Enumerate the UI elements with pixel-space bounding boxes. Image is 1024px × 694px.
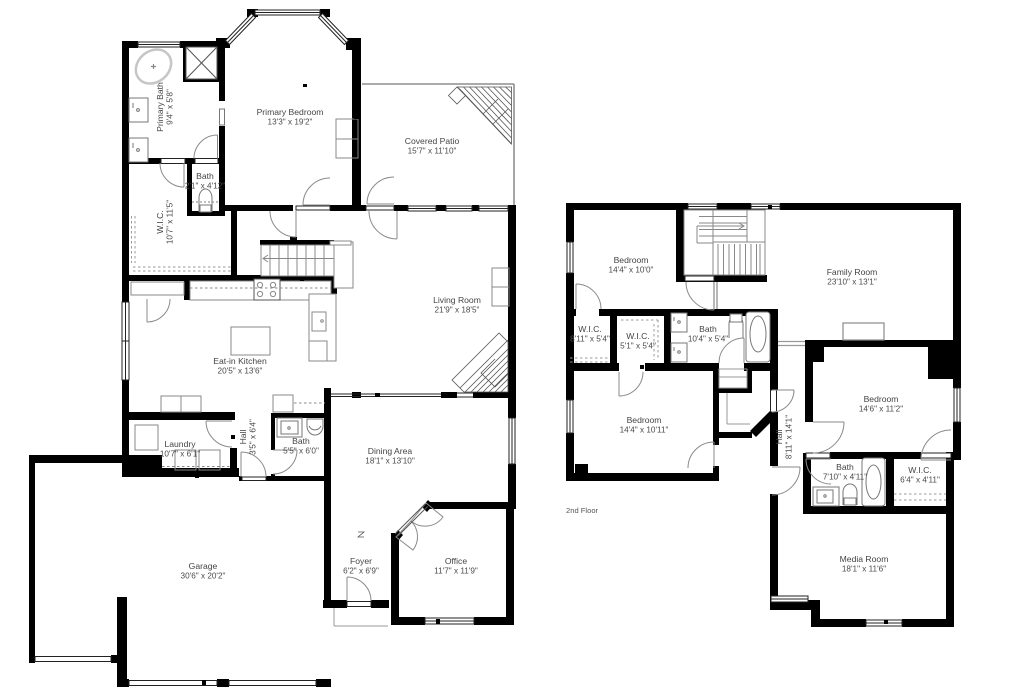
svg-text:Primary Bedroom: Primary Bedroom (257, 107, 324, 117)
svg-text:W.I.C.: W.I.C. (626, 331, 649, 341)
svg-text:Bedroom: Bedroom (864, 394, 899, 404)
svg-text:7'10" x 4'11": 7'10" x 4'11" (823, 473, 867, 482)
svg-text:14'6" x 11'2": 14'6" x 11'2" (859, 405, 903, 414)
svg-text:2nd Floor: 2nd Floor (566, 506, 599, 515)
svg-text:W.I.C.: W.I.C. (578, 324, 601, 334)
svg-text:3'5" x 6'4": 3'5" x 6'4" (249, 419, 258, 455)
svg-text:8'11" x 14'1": 8'11" x 14'1" (785, 415, 794, 459)
svg-text:W.I.C.: W.I.C. (155, 210, 165, 233)
svg-text:Living Room: Living Room (433, 295, 481, 305)
svg-text:8'11" x 5'4": 8'11" x 5'4" (570, 335, 610, 344)
svg-text:10'7" x 6'1": 10'7" x 6'1" (160, 450, 200, 459)
svg-text:10'7" x 11'5": 10'7" x 11'5" (166, 200, 175, 244)
svg-text:Bath: Bath (292, 436, 310, 446)
svg-text:11'7" x 11'9": 11'7" x 11'9" (434, 567, 478, 576)
svg-text:Media Room: Media Room (840, 554, 889, 564)
svg-text:Bath: Bath (836, 462, 854, 472)
svg-text:Foyer: Foyer (350, 556, 372, 566)
svg-text:9'4" x 5'8": 9'4" x 5'8" (166, 89, 175, 125)
svg-text:Bedroom: Bedroom (627, 415, 662, 425)
svg-text:Bath: Bath (196, 171, 214, 181)
svg-text:Garage: Garage (189, 561, 218, 571)
svg-text:6'2" x 6'9": 6'2" x 6'9" (343, 567, 379, 576)
svg-text:6'4" x 4'11": 6'4" x 4'11" (900, 476, 940, 485)
svg-text:Primary Bath: Primary Bath (155, 82, 165, 132)
svg-text:23'10" x 13'1": 23'10" x 13'1" (827, 278, 877, 287)
svg-text:5'1" x 5'4": 5'1" x 5'4" (620, 342, 656, 351)
svg-text:Family Room: Family Room (827, 267, 878, 277)
svg-text:Covered Patio: Covered Patio (405, 136, 460, 146)
svg-text:21'9" x 18'5": 21'9" x 18'5" (435, 306, 480, 315)
svg-text:18'1" x 13'10": 18'1" x 13'10" (365, 457, 415, 466)
svg-text:Office: Office (445, 556, 468, 566)
svg-text:W.I.C.: W.I.C. (908, 465, 931, 475)
svg-text:18'1" x 11'6": 18'1" x 11'6" (842, 565, 886, 574)
svg-text:Eat-in Kitchen: Eat-in Kitchen (213, 356, 267, 366)
svg-text:30'6" x 20'2": 30'6" x 20'2" (181, 572, 226, 581)
svg-text:Bath: Bath (699, 324, 717, 334)
svg-text:Dining Area: Dining Area (368, 446, 413, 456)
svg-text:Laundry: Laundry (164, 439, 196, 449)
svg-text:13'3" x 19'2": 13'3" x 19'2" (268, 118, 313, 127)
svg-text:5'5" x 6'0": 5'5" x 6'0" (283, 447, 319, 456)
svg-text:Hall: Hall (774, 430, 784, 445)
svg-text:15'7" x 11'10": 15'7" x 11'10" (408, 147, 457, 156)
svg-text:Bedroom: Bedroom (614, 255, 649, 265)
svg-text:10'4" x 5'4": 10'4" x 5'4" (688, 335, 728, 344)
svg-text:Hall: Hall (238, 430, 248, 445)
svg-text:14'4" x 10'0": 14'4" x 10'0" (609, 266, 654, 275)
svg-text:20'5" x 13'6": 20'5" x 13'6" (218, 367, 263, 376)
svg-text:14'4" x 10'11": 14'4" x 10'11" (620, 426, 669, 435)
svg-text:2'1" x 4'12": 2'1" x 4'12" (185, 182, 225, 191)
